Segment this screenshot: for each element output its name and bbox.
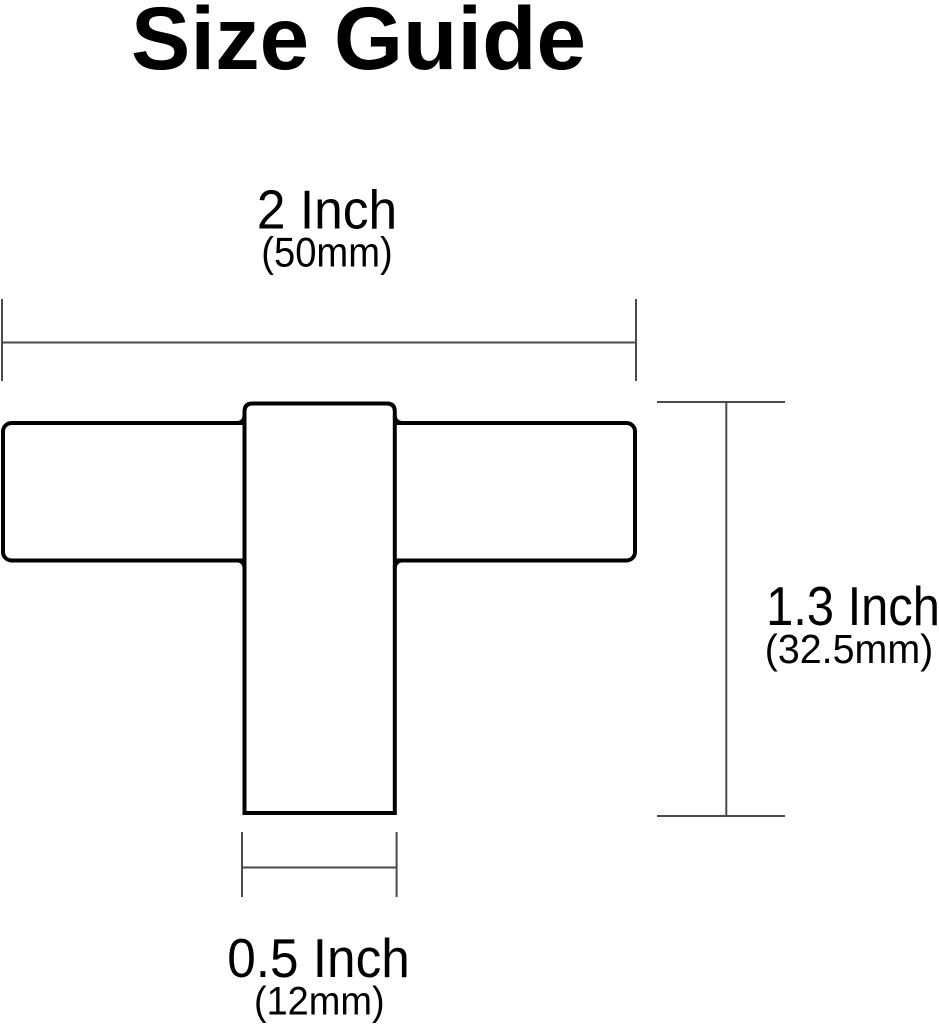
- svg-text:(12mm): (12mm): [254, 980, 385, 1024]
- svg-text:(50mm): (50mm): [261, 230, 392, 276]
- svg-text:Size Guide: Size Guide: [131, 0, 586, 88]
- svg-text:(32.5mm): (32.5mm): [765, 626, 933, 672]
